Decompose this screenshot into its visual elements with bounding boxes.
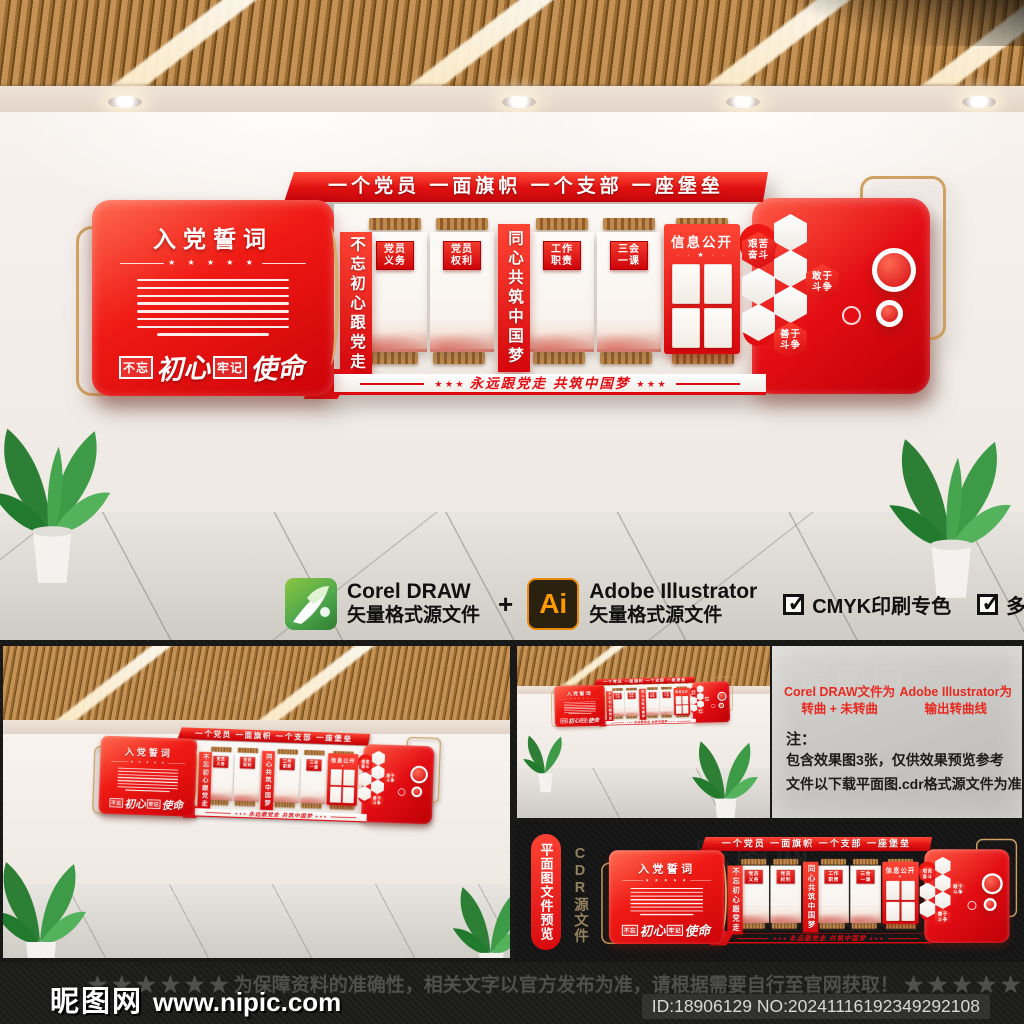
scenic-art — [530, 318, 594, 352]
site-footer: ★ ★ ★ ★ ★ ★ 为保障资料的准确性，相关文字以官方发布为准，请根据需要自… — [0, 962, 1024, 1024]
red-dot — [967, 901, 976, 910]
lattice-decoration — [211, 747, 232, 752]
red-dot — [398, 788, 406, 796]
scenic-art — [273, 789, 299, 803]
lattice-decoration — [821, 859, 846, 865]
ceiling-light-strip — [44, 646, 184, 730]
lattice-base — [820, 923, 845, 929]
potted-plant — [519, 728, 571, 794]
panel-label: 党员权利 — [777, 870, 795, 884]
oath-text-lines — [99, 767, 196, 793]
circle-frame-small — [984, 898, 997, 911]
scenic-art — [738, 907, 769, 923]
lattice-base — [234, 801, 255, 806]
panel-label: 党员义务 — [614, 693, 622, 699]
plus-sign: + — [498, 589, 513, 620]
panel-label: 党员权利 — [628, 693, 636, 699]
slogan-strip: ★ ★ ★永远跟党走 共筑中国梦★ ★ ★ — [334, 374, 766, 395]
red-dot — [842, 306, 861, 325]
wood-slat-ceiling — [3, 646, 510, 724]
vertical-banner-center: 同心共筑中国梦 — [803, 862, 818, 933]
slogan-strip: ★ ★ ★永远跟党走 共筑中国梦★ ★ ★ — [725, 933, 931, 943]
panel-label: 党员义务 — [745, 870, 763, 884]
header-ribbon: 一个党员 一面旗帜 一个支部 一座堡垒 — [701, 837, 932, 851]
content-panel-jobs: 工作职责 — [273, 754, 300, 803]
lattice-decoration — [603, 218, 655, 230]
feature-check-cmyk: ✓ CMYK印刷专色 — [783, 590, 951, 619]
panel-label: 三会一课 — [662, 692, 670, 698]
party-culture-wall: 一个党员 一面旗帜 一个支部 一座堡垒 党员义务 党员权利 工作职责 三会一课 — [97, 722, 442, 826]
oath-panel: 入党誓词 ★ ★ ★ ★ ★ 不忘初心牢记使命 — [92, 200, 334, 396]
ceiling-shadow — [784, 0, 1024, 46]
panel-label: 党员义务 — [376, 241, 414, 270]
vertical-banner-center: 同心共筑中国梦 — [260, 751, 275, 810]
potted-plant — [3, 846, 95, 958]
downlight — [726, 96, 760, 108]
scenic-art — [430, 318, 494, 352]
downlight — [502, 96, 536, 108]
lattice-base — [772, 923, 797, 929]
content-panel-duty: 党员义务 — [738, 866, 769, 923]
lattice-base — [612, 716, 623, 719]
oath-text-lines — [92, 279, 334, 336]
panel-label: 三会一课 — [306, 759, 322, 771]
lattice-decoration — [304, 750, 325, 755]
circle-frame-small — [876, 300, 903, 327]
content-panel-meetings: 三会一课 — [300, 755, 327, 804]
lattice-base — [533, 352, 585, 364]
lattice-base — [301, 803, 322, 808]
lattice-base — [647, 715, 658, 718]
scenic-art — [300, 790, 326, 804]
checkbox-icon: ✓ — [783, 594, 804, 615]
cdr-source-label: CDR源文件 — [570, 840, 591, 950]
panel-label: 党员义务 — [213, 756, 229, 768]
lattice-base — [626, 716, 637, 719]
format-notes: Corel DRAW文件为 转曲 + 未转曲 Adobe Illustrator… — [772, 646, 1022, 718]
content-panel-meetings: 三会一课 — [850, 866, 881, 923]
software-format-row: Corel DRAW 矢量格式源文件 + Ai Adobe Illustrato… — [285, 575, 1005, 633]
flat-preview-label: 平面图文件预览 — [531, 834, 561, 950]
vertical-banner-left: 不忘初心跟党走 — [340, 232, 372, 376]
potted-plant — [443, 874, 510, 958]
lattice-decoration — [369, 218, 421, 230]
lattice-decoration — [536, 218, 588, 230]
header-ribbon: 一个党员 一面旗帜 一个支部 一座堡垒 — [284, 172, 768, 202]
party-culture-wall: 一个党员 一面旗帜 一个支部 一座堡垒 党员义务 党员权利 工作职责 三会一课 — [607, 834, 1018, 945]
panel-label: 三会一课 — [857, 870, 875, 884]
vertical-banner-left: 不忘初心跟党走 — [727, 866, 742, 935]
lattice-decoration — [853, 859, 878, 865]
angled-render-middle — [517, 646, 770, 818]
lattice-base — [852, 923, 877, 929]
motto-calligraphy: 不忘初心牢记使命 — [555, 715, 606, 724]
header-ribbon-text: 一个党员 一面旗帜 一个支部 一座堡垒 — [328, 176, 724, 197]
note-line: 文件以下载平面图.cdr格式源文件为准 — [786, 774, 1022, 794]
oath-panel: 入党誓词 ★ ★ ★ ★ ★ 不忘初心牢记使命 — [554, 685, 606, 727]
content-panel-jobs: 工作职责 — [818, 866, 849, 923]
content-panel-rights: 党员权利 — [430, 232, 494, 352]
lattice-base — [600, 352, 652, 364]
party-culture-wall: 一个党员 一面旗帜 一个支部 一座堡垒 党员义务 党员权利 工作职责 三会一课 — [553, 674, 734, 727]
panel-label: 党员权利 — [240, 757, 256, 769]
content-panel-jobs: 工作职责 — [646, 690, 660, 715]
lattice-base — [661, 715, 672, 718]
content-panel-rights: 党员权利 — [233, 753, 260, 802]
motto-calligraphy: 不忘初心牢记使命 — [99, 794, 196, 813]
photo-frames — [664, 264, 740, 348]
scenic-art — [646, 708, 660, 715]
circle-frame-large — [717, 692, 726, 701]
lattice-base — [274, 802, 295, 807]
panel-label: 工作职责 — [543, 241, 581, 270]
info-disclosure-panel: 信息公开 · · ★ · · — [326, 753, 358, 806]
circle-frame-small — [411, 786, 422, 797]
content-panel-rights: 党员权利 — [770, 866, 801, 923]
checkbox-icon: ✓ — [977, 594, 998, 615]
file-notes-panel: Corel DRAW文件为 转曲 + 未转曲 Adobe Illustrator… — [772, 646, 1022, 818]
scenic-art — [660, 708, 674, 715]
stock-preview-image: 昵图网 昵图网 一个党员 一面旗帜 一个支部 一座堡垒 党员义务 — [0, 0, 1024, 1024]
scenic-art — [363, 318, 427, 352]
oath-panel: 入党誓词 ★ ★ ★ ★ ★ 不忘初心牢记使命 — [609, 850, 725, 944]
motto-calligraphy: 不忘初心牢记使命 — [609, 920, 725, 939]
panel-label: 工作职责 — [280, 758, 296, 770]
circle-frame-large — [410, 766, 428, 784]
lattice-decoration — [741, 859, 766, 865]
potted-plant-left — [0, 408, 116, 588]
illustrator-text: Adobe Illustrator 矢量格式源文件 — [589, 580, 757, 628]
nipic-logo: 昵图网www.nipic.com — [50, 978, 341, 1020]
lattice-base — [740, 923, 765, 929]
scenic-art — [818, 907, 849, 923]
scenic-art — [770, 907, 801, 923]
lattice-decoration — [277, 749, 298, 754]
photo-frames — [327, 769, 358, 803]
lattice-base — [433, 352, 485, 364]
circle-frame-large — [872, 248, 916, 292]
info-disclosure-panel: 信息公开 · · ★ · · — [674, 688, 691, 716]
panel-label: 党员权利 — [443, 241, 481, 270]
downlight — [962, 96, 996, 108]
potted-plant — [675, 730, 770, 818]
oath-text-lines — [554, 701, 605, 714]
party-culture-wall: 一个党员 一面旗帜 一个支部 一座堡垒 党员义务 党员权利 工作职责 三会一课 — [88, 166, 948, 398]
panel-label: 三会一课 — [610, 241, 648, 270]
lattice-base — [208, 800, 229, 805]
content-panel-rights: 党员权利 — [625, 691, 639, 716]
ceiling-light-strip — [247, 646, 387, 730]
scenic-art — [850, 907, 881, 923]
lattice-decoration — [238, 748, 259, 753]
content-panel-jobs: 工作职责 — [530, 232, 594, 352]
panel-label: 工作职责 — [648, 692, 656, 698]
circle-frame-small — [718, 703, 724, 709]
corel-note: Corel DRAW文件为 转曲 + 未转曲 — [784, 684, 895, 718]
info-disclosure-panel: 信息公开 · · ★ · · — [664, 224, 740, 354]
lattice-decoration — [436, 218, 488, 230]
vertical-banner-center: 同心共筑中国梦 — [639, 689, 646, 720]
downlight — [108, 96, 142, 108]
scenic-art — [597, 318, 661, 352]
asset-id: ID:18906129 NO:20241116192349292108 — [642, 994, 990, 1019]
content-panel-duty: 党员义务 — [363, 232, 427, 352]
ai-note: Adobe Illustrator为 输出转曲线 — [899, 684, 1012, 718]
lattice-base — [366, 352, 418, 364]
header-ribbon-text: 一个党员 一面旗帜 一个支部 一座堡垒 — [603, 678, 686, 685]
scenic-art — [625, 709, 639, 716]
coreldraw-text: Corel DRAW 矢量格式源文件 — [347, 580, 480, 628]
photo-frames — [882, 881, 918, 921]
note-label: 注： — [786, 728, 816, 749]
scenic-art — [233, 787, 259, 801]
lattice-decoration — [773, 859, 798, 865]
vertical-banner-left: 不忘初心跟党走 — [197, 752, 212, 810]
photo-frames — [674, 696, 690, 714]
header-ribbon-text: 一个党员 一面旗帜 一个支部 一座堡垒 — [722, 839, 911, 849]
oath-panel: 入党誓词 ★ ★ ★ ★ ★ 不忘初心牢记使命 — [98, 736, 197, 817]
content-panel-meetings: 三会一课 — [597, 232, 661, 352]
coreldraw-icon — [285, 578, 337, 630]
note-line: 包含效果图3张，仅供效果预览参考 — [786, 750, 1004, 770]
vertical-banner-center: 同心共筑中国梦 — [498, 224, 530, 372]
panel-label: 工作职责 — [824, 870, 842, 884]
illustrator-icon: Ai — [527, 578, 579, 630]
oath-text-lines — [609, 888, 725, 915]
content-panel-meetings: 三会一课 — [660, 690, 674, 715]
red-dot — [711, 704, 715, 708]
motto-calligraphy: 不忘初心牢记使命 — [92, 347, 334, 386]
wood-slat-ceiling — [0, 0, 1024, 92]
info-disclosure-panel: 信息公开 · · ★ · · — [882, 862, 918, 924]
feature-check-hd: ✓ 多方位高清效果图 — [977, 590, 1024, 619]
circle-frame-large — [982, 873, 1003, 894]
vertical-banner-left: 不忘初心跟党走 — [606, 691, 613, 721]
